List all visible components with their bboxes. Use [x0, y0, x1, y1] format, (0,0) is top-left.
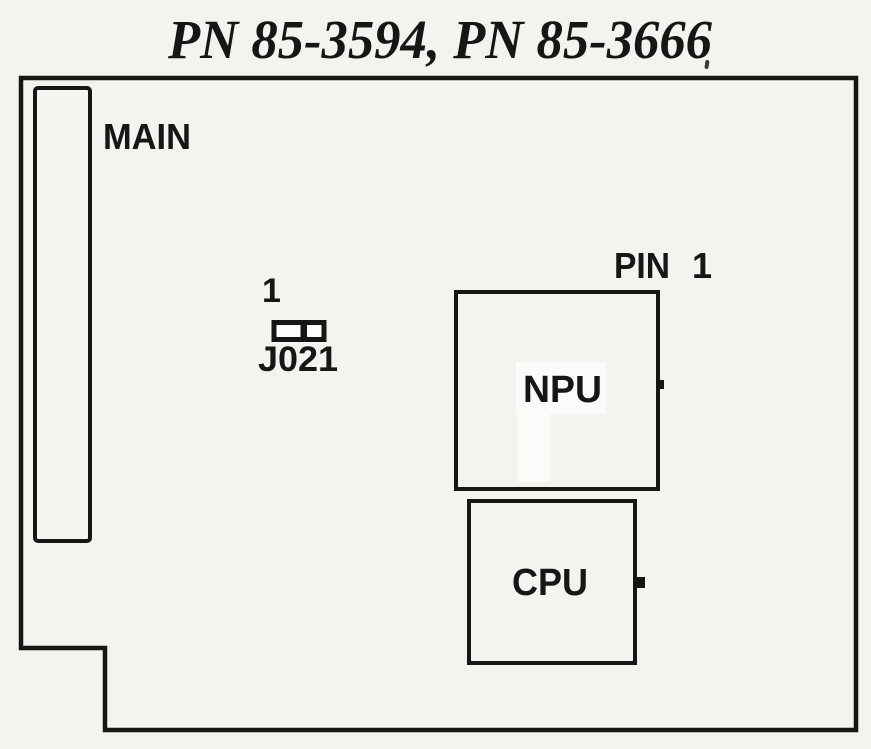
svg-text:J021: J021: [258, 340, 338, 379]
svg-text:PIN: PIN: [614, 245, 670, 286]
svg-text:PN 85-3594, PN 85-3666: PN 85-3594, PN 85-3666: [167, 9, 712, 70]
svg-text:1: 1: [262, 272, 281, 310]
svg-text:MAIN: MAIN: [103, 116, 191, 157]
svg-text:NPU: NPU: [523, 369, 602, 411]
svg-text:CPU: CPU: [512, 562, 588, 604]
svg-text:1: 1: [692, 245, 712, 286]
